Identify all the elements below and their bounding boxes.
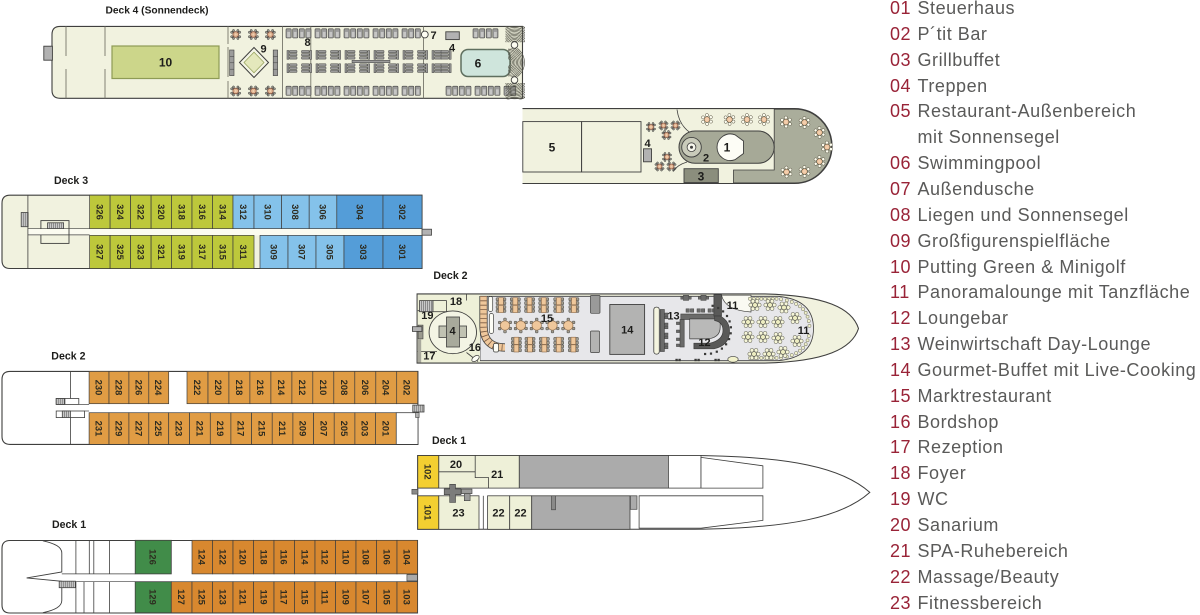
svg-text:10: 10 (159, 56, 173, 70)
svg-text:222: 222 (192, 380, 203, 396)
svg-text:102: 102 (423, 464, 434, 480)
svg-text:212: 212 (297, 380, 308, 396)
svg-text:203: 203 (360, 421, 371, 437)
svg-text:101: 101 (423, 505, 434, 521)
svg-text:304: 304 (355, 204, 366, 220)
svg-text:7: 7 (430, 30, 436, 42)
svg-text:309: 309 (269, 244, 280, 260)
svg-text:209: 209 (298, 421, 309, 437)
svg-text:206: 206 (360, 380, 371, 396)
svg-text:221: 221 (194, 421, 205, 437)
svg-text:19: 19 (421, 310, 433, 322)
svg-text:126: 126 (148, 549, 159, 565)
svg-text:127: 127 (176, 589, 187, 605)
svg-text:108: 108 (361, 549, 372, 565)
svg-text:214: 214 (276, 380, 287, 396)
svg-text:227: 227 (133, 421, 144, 437)
svg-text:225: 225 (153, 421, 164, 437)
svg-text:231: 231 (94, 421, 105, 437)
svg-text:218: 218 (234, 380, 245, 396)
svg-text:207: 207 (318, 421, 329, 437)
svg-text:106: 106 (381, 549, 392, 565)
svg-text:116: 116 (279, 549, 290, 564)
svg-text:224: 224 (153, 380, 164, 396)
svg-text:Deck 1: Deck 1 (52, 519, 86, 531)
svg-text:118: 118 (258, 549, 269, 564)
svg-text:22: 22 (514, 508, 526, 520)
svg-text:202: 202 (402, 380, 413, 396)
svg-text:322: 322 (135, 204, 146, 220)
svg-text:14: 14 (621, 325, 634, 337)
svg-text:4: 4 (644, 138, 651, 150)
svg-text:105: 105 (381, 589, 392, 605)
svg-text:4: 4 (449, 326, 456, 338)
svg-text:4: 4 (449, 43, 456, 55)
svg-text:229: 229 (114, 421, 125, 437)
svg-text:123: 123 (217, 589, 228, 605)
svg-text:315: 315 (217, 244, 228, 260)
svg-text:111: 111 (320, 590, 331, 605)
svg-text:114: 114 (299, 549, 310, 565)
svg-text:228: 228 (114, 380, 125, 396)
svg-text:320: 320 (156, 204, 167, 220)
svg-text:5: 5 (549, 141, 556, 155)
svg-text:124: 124 (197, 549, 208, 565)
svg-text:326: 326 (94, 204, 105, 220)
svg-text:12: 12 (698, 337, 710, 349)
svg-text:317: 317 (197, 244, 208, 260)
svg-text:6: 6 (475, 57, 482, 71)
svg-text:3: 3 (698, 170, 705, 184)
svg-text:23: 23 (452, 508, 464, 520)
svg-text:9: 9 (260, 44, 266, 56)
svg-text:109: 109 (340, 589, 351, 605)
svg-text:122: 122 (217, 549, 228, 565)
svg-text:312: 312 (238, 204, 249, 220)
svg-text:20: 20 (450, 459, 462, 471)
svg-text:Deck 2: Deck 2 (433, 270, 467, 282)
svg-text:301: 301 (397, 244, 408, 260)
svg-text:216: 216 (255, 380, 266, 396)
svg-text:306: 306 (318, 204, 329, 220)
svg-text:Deck 2: Deck 2 (51, 351, 85, 363)
svg-text:15: 15 (541, 313, 553, 325)
svg-text:201: 201 (380, 421, 391, 437)
svg-text:Deck 1: Deck 1 (432, 435, 466, 447)
svg-text:305: 305 (325, 244, 336, 260)
svg-text:125: 125 (197, 589, 208, 605)
svg-text:215: 215 (256, 421, 267, 437)
svg-text:Deck 4 (Sonnendeck): Deck 4 (Sonnendeck) (106, 6, 209, 17)
svg-text:129: 129 (148, 589, 159, 605)
svg-text:303: 303 (358, 244, 369, 260)
svg-text:21: 21 (491, 469, 503, 481)
svg-text:18: 18 (450, 296, 462, 308)
svg-text:210: 210 (318, 380, 329, 396)
svg-text:13: 13 (667, 311, 679, 323)
svg-text:321: 321 (156, 244, 167, 260)
svg-text:8: 8 (304, 37, 310, 49)
svg-text:226: 226 (133, 380, 144, 396)
svg-text:324: 324 (115, 204, 126, 220)
svg-text:316: 316 (197, 204, 208, 220)
svg-text:121: 121 (238, 589, 249, 605)
svg-text:112: 112 (320, 549, 331, 564)
svg-text:230: 230 (94, 380, 105, 396)
svg-text:104: 104 (402, 549, 413, 565)
svg-text:205: 205 (339, 421, 350, 437)
svg-text:211: 211 (277, 421, 288, 436)
svg-text:318: 318 (176, 204, 187, 220)
svg-text:208: 208 (339, 380, 350, 396)
svg-text:314: 314 (217, 204, 228, 220)
svg-text:119: 119 (258, 589, 269, 604)
svg-text:115: 115 (299, 589, 310, 604)
svg-text:22: 22 (492, 508, 504, 520)
svg-text:220: 220 (213, 380, 224, 396)
svg-text:325: 325 (115, 244, 126, 260)
svg-text:Deck 3: Deck 3 (54, 175, 88, 187)
svg-text:217: 217 (236, 421, 247, 437)
svg-text:219: 219 (215, 421, 226, 437)
svg-text:310: 310 (262, 204, 273, 220)
svg-text:16: 16 (469, 342, 481, 354)
svg-text:120: 120 (238, 549, 249, 565)
svg-text:223: 223 (174, 421, 185, 437)
svg-text:1: 1 (724, 141, 731, 155)
svg-text:204: 204 (381, 380, 392, 396)
svg-text:308: 308 (290, 204, 301, 220)
svg-text:11: 11 (727, 300, 739, 312)
svg-text:311: 311 (238, 244, 249, 259)
svg-text:17: 17 (423, 351, 435, 363)
svg-text:327: 327 (94, 244, 105, 260)
svg-text:307: 307 (297, 244, 308, 260)
svg-text:323: 323 (135, 244, 146, 260)
svg-text:117: 117 (279, 589, 290, 604)
svg-text:107: 107 (361, 589, 372, 605)
svg-text:110: 110 (340, 549, 351, 564)
svg-text:2: 2 (703, 153, 709, 165)
svg-text:302: 302 (397, 204, 408, 220)
svg-text:103: 103 (402, 589, 413, 605)
svg-text:319: 319 (176, 244, 187, 260)
